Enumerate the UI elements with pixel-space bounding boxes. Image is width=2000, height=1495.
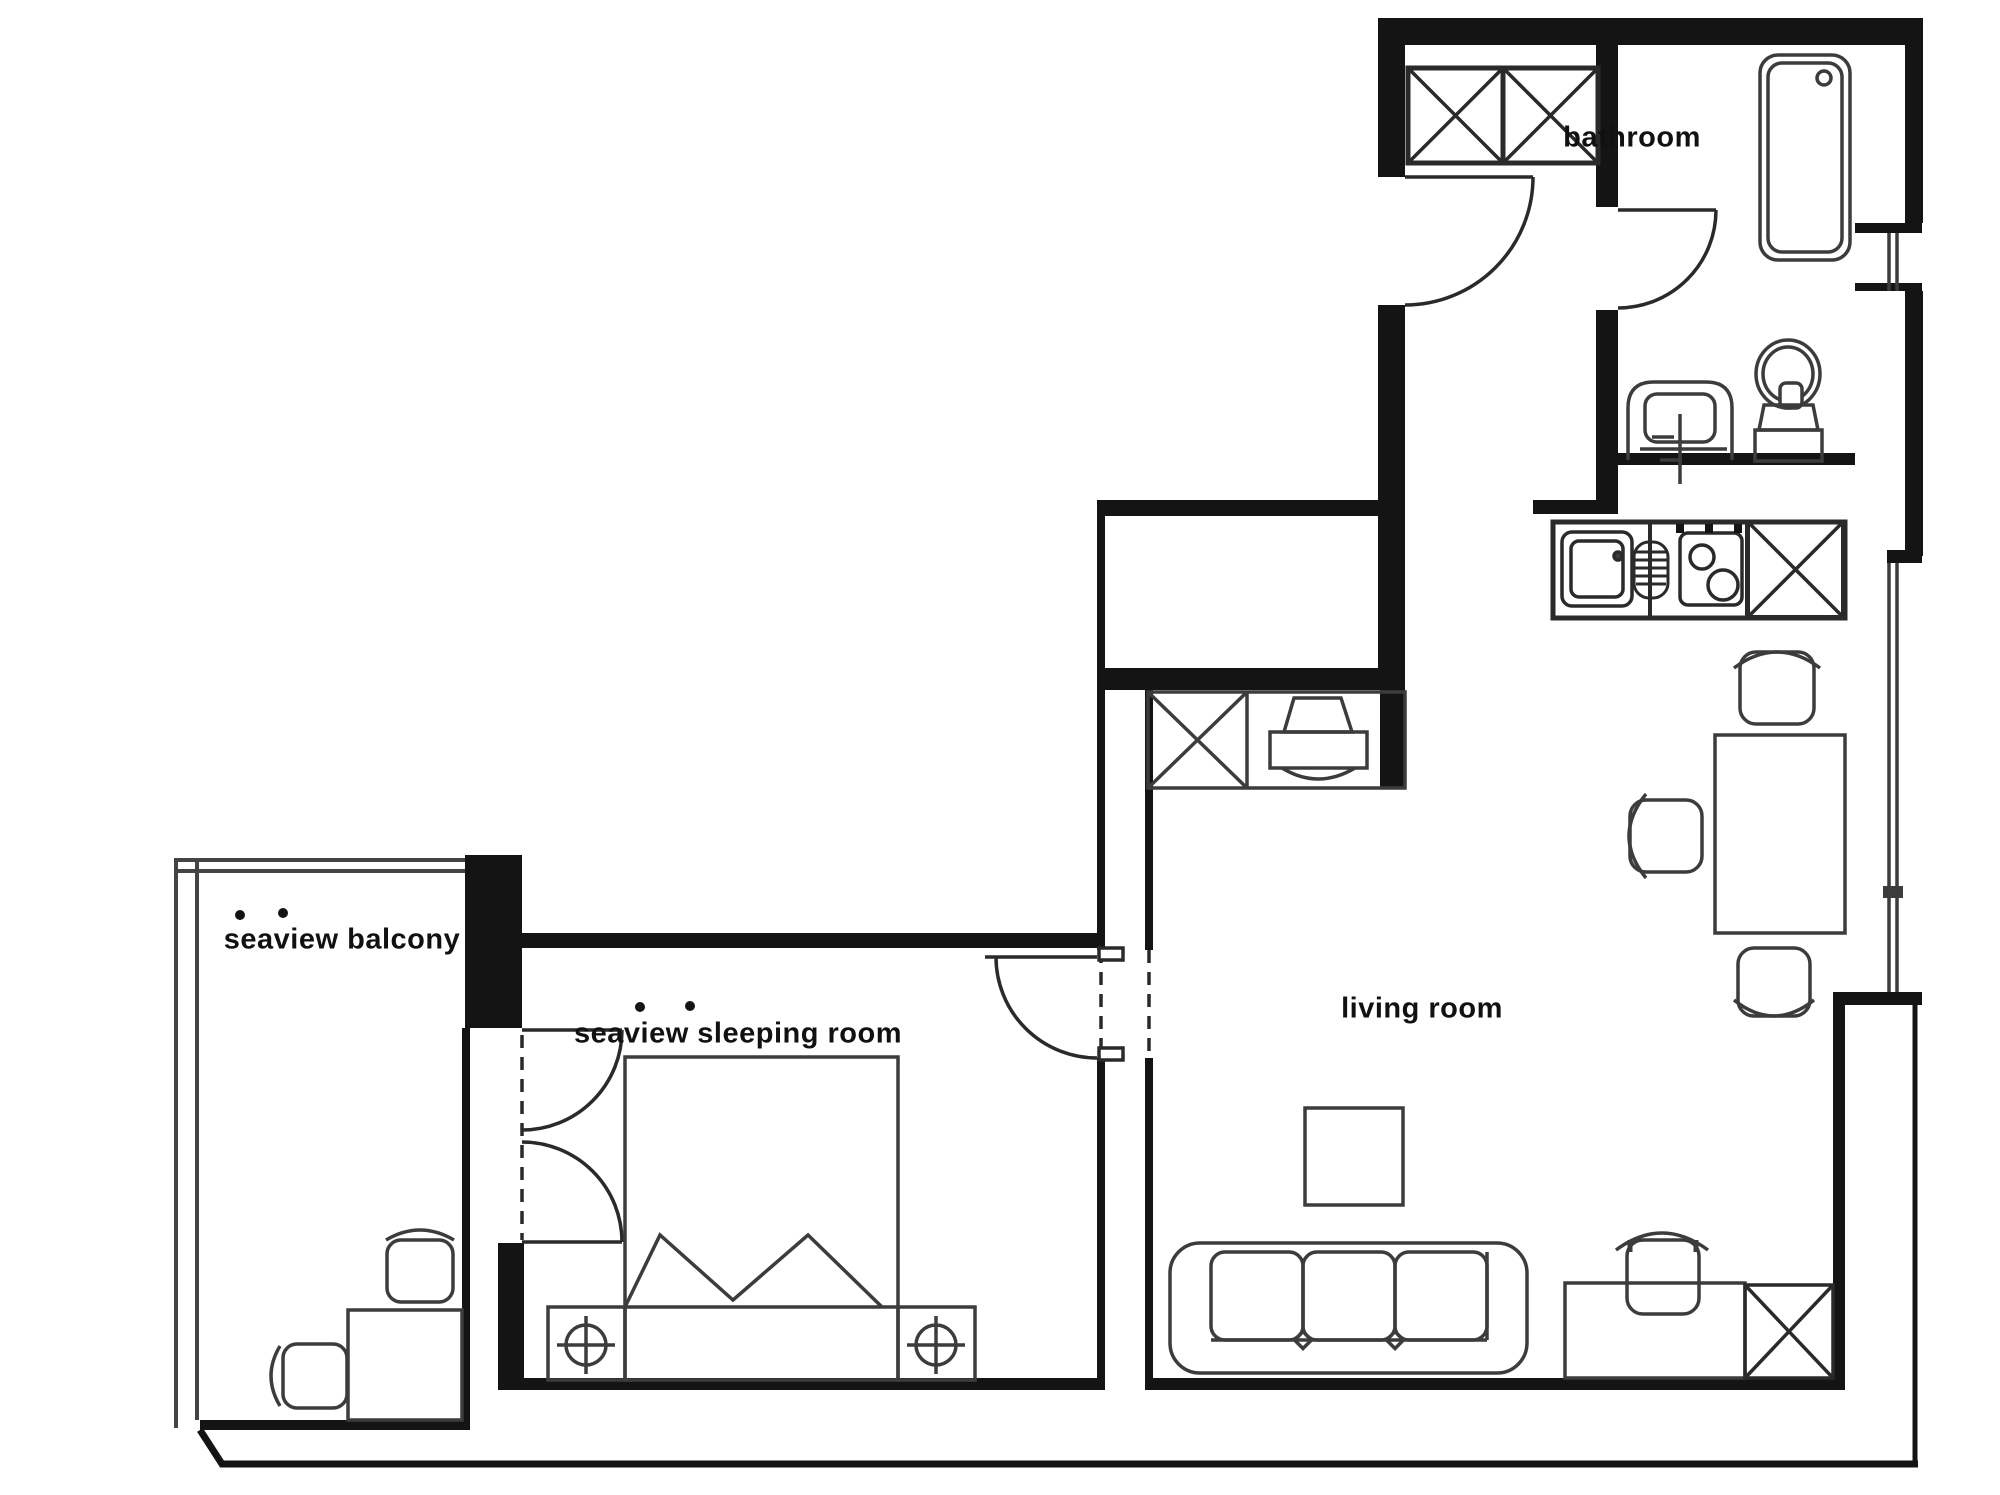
wall-shaft-top <box>1097 500 1405 516</box>
computer-workstation-icon <box>1270 698 1367 779</box>
kitchen-counter <box>1553 522 1845 618</box>
coffee-table-icon <box>1305 1108 1403 1205</box>
wall-living-left-lower <box>1145 1058 1153 1390</box>
wall-bathroom-bottom <box>1615 453 1855 465</box>
cabinet-row <box>1148 692 1405 788</box>
wall-sleeping-right-lower <box>1097 1058 1105 1390</box>
dining-chair-bottom-icon <box>1734 948 1814 1016</box>
floor-plan-drawing <box>0 0 2000 1495</box>
desk-icon <box>1565 1283 1745 1378</box>
wall-sleeping-west-lower <box>498 1243 524 1390</box>
wall-bath-left-lower <box>1596 310 1618 514</box>
double-bed-icon <box>625 1057 898 1380</box>
windows <box>1883 233 1903 992</box>
doors <box>522 177 1716 1242</box>
cabinet-crossed-box-icon <box>1148 692 1247 788</box>
walls <box>200 18 1923 1430</box>
boundary-bottom-line <box>200 1430 1918 1464</box>
bathroom-window-icon <box>1889 233 1897 291</box>
dining-chair-top-icon <box>1734 652 1820 724</box>
wall-sleeping-right-upper <box>1097 516 1105 950</box>
sleeping-door-icon <box>985 948 1149 1060</box>
bath-window-jamb-top <box>1855 223 1922 233</box>
window-jamb-top <box>1887 550 1922 563</box>
entry-door-icon <box>1405 177 1533 305</box>
wall-right-upper <box>1905 18 1923 223</box>
washbasin-icon <box>1628 382 1732 484</box>
dining-chair-left-icon <box>1629 794 1702 878</box>
balcony-furniture <box>271 1230 462 1420</box>
wall-hall-left-upper <box>1378 18 1405 177</box>
living-crossed-box-icon <box>1745 1285 1833 1378</box>
bathtub-icon <box>1760 55 1850 260</box>
sleeping-furniture <box>548 1057 975 1380</box>
wall-right-mid <box>1905 291 1923 556</box>
room-label-living: living room <box>1341 993 1503 1026</box>
wall-sleeping-top <box>522 933 1105 948</box>
window-jamb-bottom <box>1845 992 1922 1005</box>
wall-top <box>1378 18 1923 45</box>
two-burner-stove-icon <box>1676 524 1742 605</box>
balcony-french-door-icon <box>522 1030 622 1242</box>
dining-table-icon <box>1715 735 1845 933</box>
dining-set <box>1629 652 1845 1016</box>
three-seat-sofa-icon <box>1170 1243 1527 1373</box>
floor-plan: bathroom seaview balcony seaview sleepin… <box>0 0 2000 1495</box>
nightstand-right-icon <box>898 1307 975 1380</box>
living-window-icon <box>1883 563 1903 992</box>
wall-kitchen-back <box>1533 500 1618 514</box>
wall-balcony-divider <box>465 855 522 1028</box>
room-label-sleeping: seaview sleeping room <box>574 1018 902 1051</box>
room-label-balcony: seaview balcony <box>224 924 460 957</box>
wall-step <box>1097 668 1405 690</box>
bathroom-fixtures <box>1628 55 1850 484</box>
wall-living-bottom <box>1145 1378 1845 1390</box>
wall-living-right <box>1833 992 1845 1390</box>
wall-stub <box>1380 690 1405 788</box>
toilet-icon <box>1755 340 1822 461</box>
kitchen-sink-icon <box>1562 532 1632 606</box>
bathroom-door-icon <box>1618 210 1716 308</box>
room-label-bathroom: bathroom <box>1563 122 1701 155</box>
kitchen-crossed-box-icon <box>1748 522 1843 617</box>
balcony-table-icon <box>348 1310 462 1420</box>
balcony-chair-top-icon <box>386 1230 454 1302</box>
wall-hall-left-lower <box>1378 305 1405 668</box>
balcony-chair-left-icon <box>271 1344 347 1408</box>
desk-chair-icon <box>1616 1233 1708 1314</box>
nightstand-left-icon <box>548 1307 625 1380</box>
living-furniture <box>1170 1108 1833 1378</box>
